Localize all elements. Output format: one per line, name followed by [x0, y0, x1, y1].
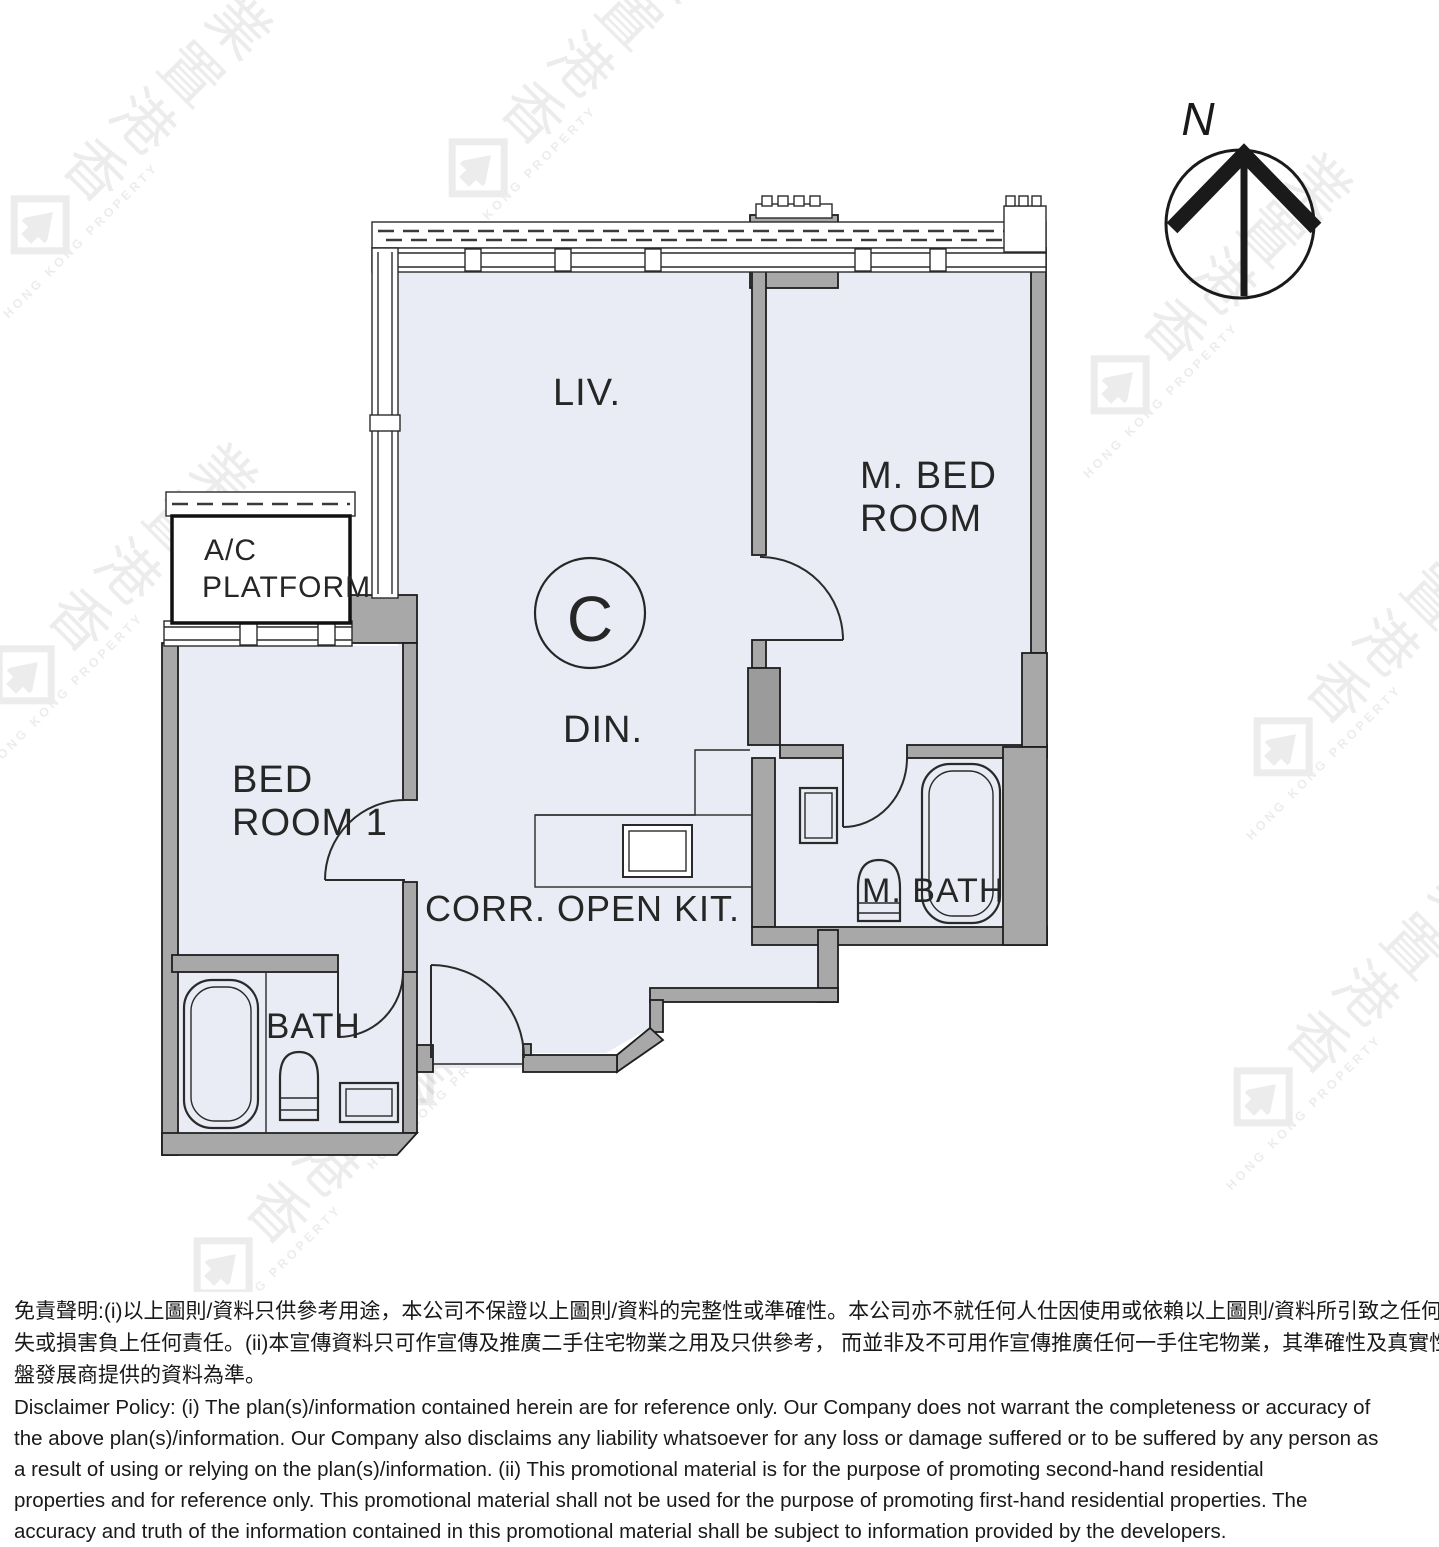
unit-letter: C [567, 583, 613, 655]
room-label-bedroom1-1: BED [232, 759, 313, 801]
disclaimer-chinese: 免責聲明:(i)以上圖則/資料只供參考用途，本公司不保證以上圖則/資料的完整性或… [14, 1296, 1426, 1392]
room-label-master-bedroom-2: ROOM [860, 498, 982, 540]
disclaimer-english: Disclaimer Policy: (i) The plan(s)/infor… [14, 1392, 1426, 1547]
room-label-corridor-kitchen: CORR. OPEN KIT. [425, 888, 740, 929]
room-label-master-bedroom-1: M. BED [860, 455, 997, 497]
room-label-ac-platform-1: A/C [204, 534, 257, 567]
compass-north-letter: N [1181, 93, 1215, 145]
room-label-bedroom1-2: ROOM 1 [232, 802, 388, 844]
floorplan-canvas: 業 置 港 香 HONG KONG PROPERTY [0, 0, 1439, 1292]
room-label-ac-platform-2: PLATFORM [202, 571, 371, 604]
ac-platform-outline [172, 516, 350, 623]
bathtub-icon [184, 980, 258, 1128]
room-label-master-bath: M. BATH [862, 872, 1004, 910]
stove-icon [623, 825, 692, 877]
room-label-dining: DIN. [563, 709, 643, 751]
room-label-living: LIV. [553, 372, 621, 414]
north-compass-icon: N [1166, 93, 1316, 298]
room-label-bath: BATH [266, 1007, 361, 1046]
disclaimer-block: 免責聲明:(i)以上圖則/資料只供參考用途，本公司不保證以上圖則/資料的完整性或… [14, 1296, 1426, 1547]
